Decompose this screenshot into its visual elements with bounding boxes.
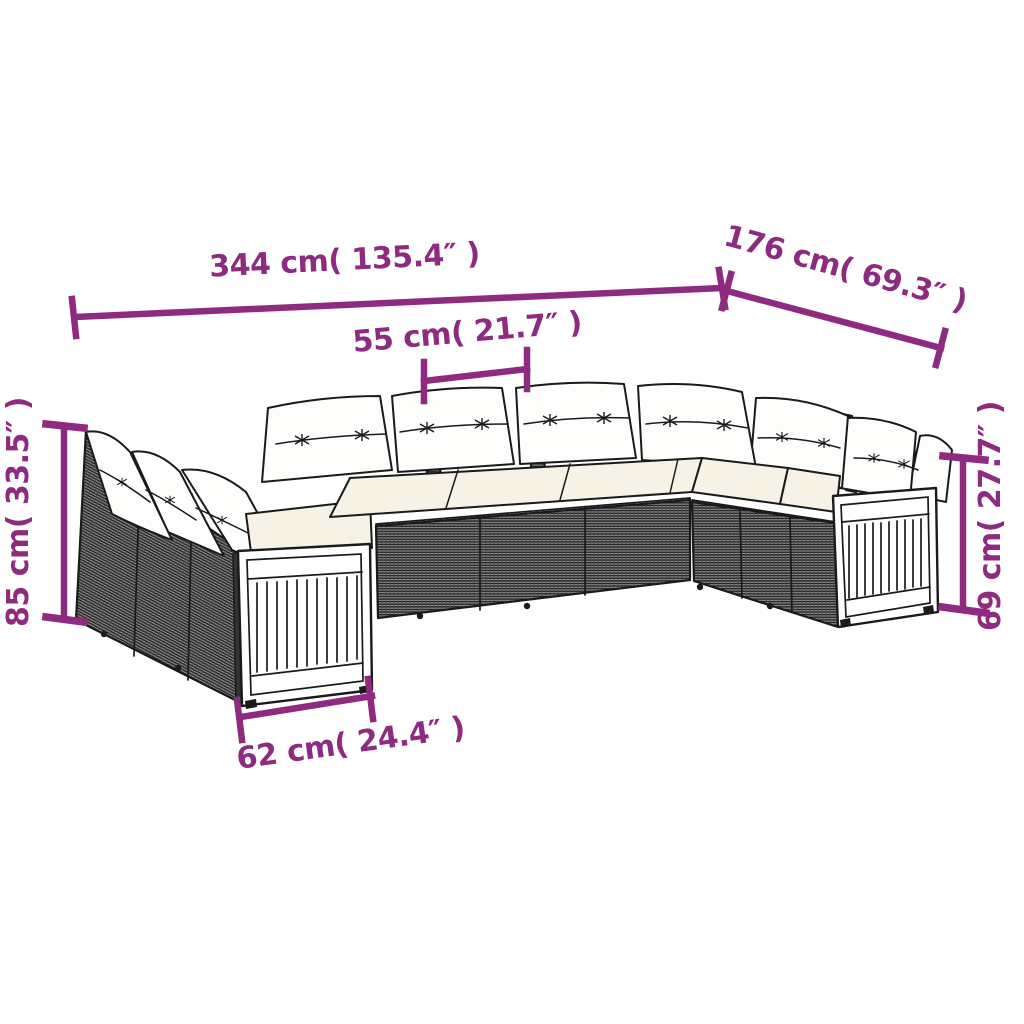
wood-panel-right xyxy=(833,488,938,628)
sofa-foot xyxy=(767,603,773,609)
sofa-illustration xyxy=(76,383,952,709)
back-cushion xyxy=(516,383,636,464)
dim-overall-width-line xyxy=(75,288,722,317)
sofa-foot xyxy=(524,603,530,609)
diagram-canvas: 344 cm( 135.4″ ) 176 cm( 69.3″ ) 55 cm( … xyxy=(0,0,1024,1024)
dim-back-height-label: 85 cm( 33.5″ ) xyxy=(1,397,36,627)
dim-seat-width-line xyxy=(424,369,527,381)
sofa-foot xyxy=(697,584,703,590)
sofa-foot xyxy=(175,665,181,671)
dim-overall-depth: 176 cm( 69.3″ ) xyxy=(720,219,971,365)
rattan-right-inner-face xyxy=(692,502,838,627)
seat-cushion-right xyxy=(780,468,840,512)
dim-overall-depth-label: 176 cm( 69.3″ ) xyxy=(720,219,971,320)
dim-seat-width-label: 55 cm( 21.7″ ) xyxy=(351,305,583,360)
sofa-dimension-diagram: 344 cm( 135.4″ ) 176 cm( 69.3″ ) 55 cm( … xyxy=(0,0,1024,1024)
dim-back-height: 85 cm( 33.5″ ) xyxy=(1,397,84,627)
wood-panel-left xyxy=(233,544,372,709)
dim-armrest-height: 69 cm( 27.7″ ) xyxy=(942,401,1008,631)
sofa-foot xyxy=(101,631,107,637)
sofa-foot xyxy=(417,613,423,619)
dim-armrest-height-label: 69 cm( 27.7″ ) xyxy=(973,401,1008,631)
dim-overall-width-label: 344 cm( 135.4″ ) xyxy=(208,236,480,284)
rattan-front-face xyxy=(376,500,690,618)
back-cushion xyxy=(262,396,392,482)
dim-armrest-depth-label: 62 cm( 24.4″ ) xyxy=(234,710,467,777)
